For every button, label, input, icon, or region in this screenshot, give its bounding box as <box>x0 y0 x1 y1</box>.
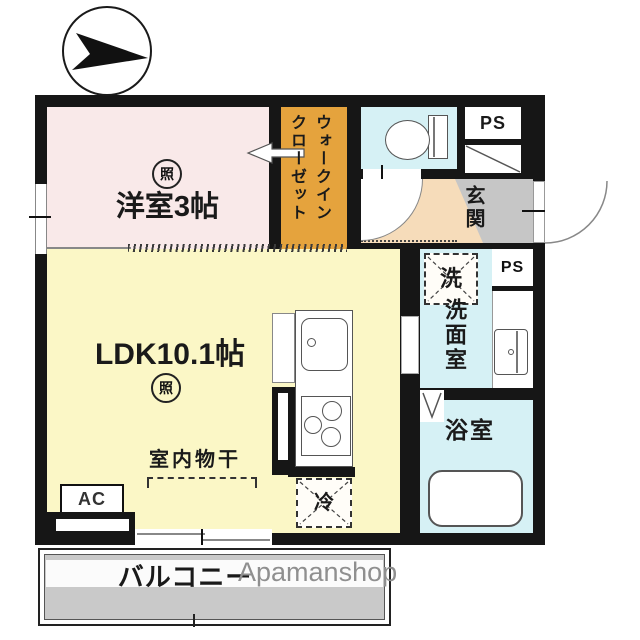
entrance-door-arc <box>545 180 609 244</box>
indoor-drying-label: 室内物干 <box>125 450 265 470</box>
north-arrow-glyph <box>64 8 154 98</box>
north-arrow <box>62 6 152 96</box>
light-badge-western: 照 <box>152 159 182 189</box>
washer-label: 洗 <box>440 268 462 290</box>
toilet-icon-bowl <box>385 120 430 160</box>
kitchen-counter-ext <box>272 313 295 383</box>
bathroom-label: 浴室 <box>437 419 503 442</box>
washroom-door-gap <box>401 316 419 374</box>
drying-bracket <box>147 477 257 488</box>
partition-line <box>47 247 131 249</box>
wic-label-line1: ウォークイン <box>313 114 329 222</box>
shoe-cabinet-diagonal <box>465 145 521 173</box>
fridge-label: 冷 <box>314 493 334 513</box>
hallway-boundary-dotted <box>361 240 457 242</box>
floor-plan-canvas: PS <box>0 0 640 640</box>
ps-lower-box: PS <box>492 249 533 286</box>
stove-burner-left <box>304 416 322 434</box>
entrance-door-tick <box>522 210 546 212</box>
bathtub-icon <box>428 470 523 527</box>
stove-burner-bottom-right <box>321 427 341 447</box>
window-south-small <box>56 519 129 531</box>
shoe-cabinet <box>465 145 521 173</box>
kitchen-wall-slit <box>278 393 288 460</box>
entrance-label: 玄関 <box>463 185 483 231</box>
ldk-label: LDK10.1帖 <box>65 340 275 370</box>
toilet-door-leaf <box>381 165 383 180</box>
washroom-label: 洗面室 <box>443 298 465 373</box>
stove-burner-top-right <box>322 401 342 421</box>
ac-unit: AC <box>60 484 124 514</box>
partition-hatch <box>128 244 347 252</box>
window-west-tick <box>29 216 51 218</box>
light-badge-western-text: 照 <box>160 164 174 184</box>
ac-label: AC <box>78 490 106 508</box>
kitchen-faucet <box>307 338 316 347</box>
watermark: Apamanshop <box>238 559 397 586</box>
ps-upper-inner: PS <box>465 107 521 139</box>
balcony-bottom-tick <box>193 614 195 627</box>
toilet-door-gap <box>363 169 421 179</box>
toilet-icon-tank <box>428 115 448 159</box>
window-west <box>35 184 47 254</box>
bathroom-door-marker <box>420 390 444 422</box>
window-south-sliding <box>135 529 272 545</box>
ps-upper-label: PS <box>480 114 506 132</box>
light-badge-ldk-text: 照 <box>159 378 173 398</box>
washbasin-knob <box>508 349 514 355</box>
toilet-icon-tank-line <box>433 117 435 157</box>
ps-lower-label: PS <box>501 259 524 277</box>
washbasin-divider <box>516 331 518 373</box>
light-badge-ldk: 照 <box>151 373 181 403</box>
kitchen-wall-bottom <box>288 467 355 477</box>
fridge-space: 冷 <box>296 478 352 528</box>
wic-label-line2: クローゼット <box>288 114 304 222</box>
entrance-door-leaf <box>533 181 545 243</box>
western-room-label: 洋室3帖 <box>90 193 245 222</box>
